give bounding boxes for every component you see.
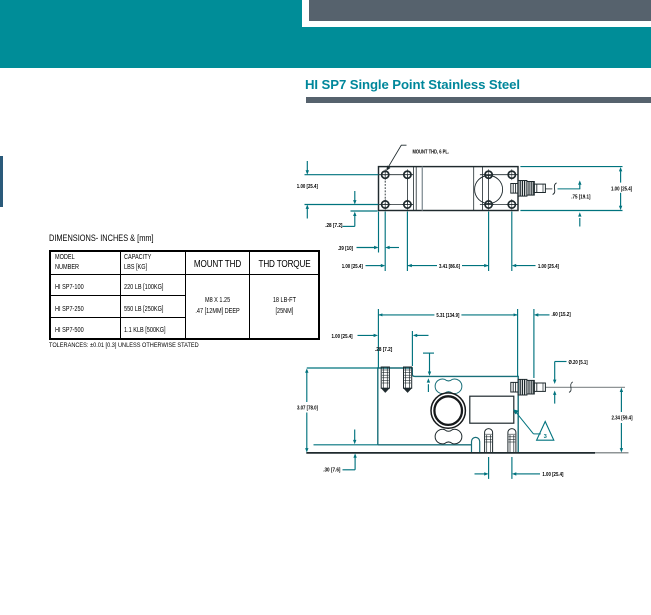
svg-text:.28 [7.2]: .28 [7.2] — [325, 223, 342, 229]
svg-text:3.07 [78.0]: 3.07 [78.0] — [297, 406, 318, 412]
svg-text:1.00 [25.4]: 1.00 [25.4] — [297, 184, 318, 190]
svg-text:5.31 [134.9]: 5.31 [134.9] — [436, 313, 459, 319]
svg-text:2.34 [59.4]: 2.34 [59.4] — [611, 416, 632, 422]
svg-text:1.00 [25.4]: 1.00 [25.4] — [611, 186, 632, 192]
svg-text:Ø.20 [5.1]: Ø.20 [5.1] — [569, 360, 588, 366]
svg-text:.30 [7.6]: .30 [7.6] — [323, 468, 340, 474]
svg-text:.75 [19.1]: .75 [19.1] — [571, 195, 590, 201]
svg-text:MOUNT THD, 6 PL.: MOUNT THD, 6 PL. — [413, 149, 450, 155]
svg-text:3: 3 — [544, 434, 548, 440]
svg-text:.60 [15.2]: .60 [15.2] — [552, 312, 571, 318]
svg-text:1.00 [25.4]: 1.00 [25.4] — [342, 264, 363, 270]
svg-text:3.41 [86.6]: 3.41 [86.6] — [439, 264, 460, 270]
svg-text:1.00 [25.4]: 1.00 [25.4] — [332, 334, 353, 340]
svg-text:1.00 [25.4]: 1.00 [25.4] — [542, 472, 563, 478]
svg-text:1.00 [25.4]: 1.00 [25.4] — [538, 264, 559, 270]
svg-text:.39 [10]: .39 [10] — [338, 246, 353, 252]
svg-text:.28 [7.2]: .28 [7.2] — [375, 347, 392, 353]
